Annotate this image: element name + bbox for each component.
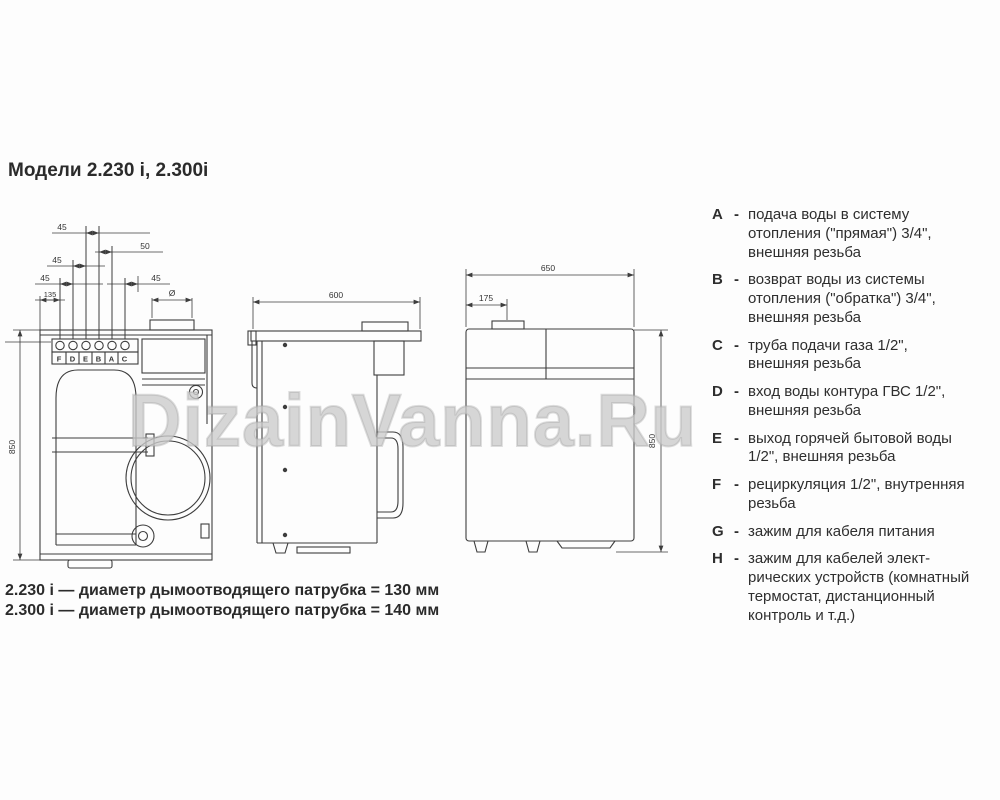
legend-key-h: H [712,550,734,567]
legend-key-f: F [712,476,734,493]
legend-text-g: зажим для кабеля питания [748,523,973,542]
legend-key-d: D [712,383,734,400]
side-dimension-lines [253,297,420,329]
side-screw-dots [283,343,287,537]
legend-dash: - [734,523,748,540]
legend-item-c: C - труба подачи газа 1/2", внешняя резь… [712,337,987,375]
note-model-2300-text: — диаметр дымоотводящего патрубка = 140 … [58,602,439,619]
legend-key-g: G [712,523,734,540]
connection-label-f: F [57,355,62,364]
connection-legend: A - подача воды в систему отопления ("пр… [712,206,987,625]
note-model-2300-name: 2.300 i [5,602,54,619]
legend-text-b: возврат воды из системы отопления ("обра… [748,271,973,327]
combustion-chamber-opening [126,436,210,520]
dim-flue-offset: 175 [479,293,493,303]
legend-dash: - [734,337,748,354]
connection-label-e: E [83,355,88,364]
legend-text-h: зажим для кабелей элект-рических устройс… [748,550,973,625]
page-title: Модели 2.230 i, 2.300i [8,160,208,182]
legend-dash: - [734,271,748,288]
dim-45-row4-right: 45 [151,273,161,283]
legend-text-a: подача воды в систему отопления ("прямая… [748,206,973,262]
side-door-bulge [377,432,403,518]
connection-pipes [60,226,125,339]
pump [132,525,154,547]
dim-height-back: 850 [647,434,657,448]
note-model-2230-text: — диаметр дымоотводящего патрубка = 130 … [58,582,439,599]
flue-collar [150,320,194,330]
note-model-2230-name: 2.230 i [5,582,54,599]
legend-item-e: E - выход горячей бытовой воды 1/2", вне… [712,430,987,468]
legend-key-b: B [712,271,734,288]
legend-item-g: G - зажим для кабеля питания [712,523,987,542]
legend-key-a: A [712,206,734,223]
dim-45-row4-left: 45 [40,273,50,283]
legend-item-a: A - подача воды в систему отопления ("пр… [712,206,987,262]
legend-dash: - [734,476,748,493]
legend-item-h: H - зажим для кабелей элект-рических уст… [712,550,987,625]
dim-depth: 600 [329,290,343,300]
legend-text-f: рециркуляция 1/2", внутренняя резьба [748,476,973,514]
connection-label-a: A [109,355,115,364]
dim-flue-diameter: Ø [169,288,176,298]
dim-50-row2: 50 [140,241,150,251]
note-model-2300: 2.300 i — диаметр дымоотводящего патрубк… [5,602,439,620]
legend-key-c: C [712,337,734,354]
expansion-tank [56,370,136,545]
boiler-dimension-diagram-page: Модели 2.230 i, 2.300i [0,0,1000,800]
legend-key-e: E [712,430,734,447]
legend-item-b: B - возврат воды из системы отопления ("… [712,271,987,327]
dim-width: 650 [541,263,555,273]
legend-text-c: труба подачи газа 1/2", внешняя резьба [748,337,973,375]
dim-45-row3: 45 [52,255,62,265]
side-body [248,322,421,553]
legend-dash: - [734,550,748,567]
legend-dash: - [734,430,748,447]
dim-135: 135 [44,290,57,299]
back-view-drawing: 650 175 850 [445,250,690,570]
legend-item-f: F - рециркуляция 1/2", внутренняя резьба [712,476,987,514]
note-model-2230: 2.230 i — диаметр дымоотводящего патрубк… [5,582,439,600]
legend-text-e: выход горячей бытовой воды 1/2", внешняя… [748,430,973,468]
side-view-drawing: 600 [240,285,445,575]
back-dimension-lines [466,269,668,552]
front-view-drawing: 45 50 45 45 45 135 Ø 850 F D E B A C [5,212,220,574]
legend-text-d: вход воды контура ГВС 1/2", внешняя резь… [748,383,973,421]
connection-label-d: D [70,355,76,364]
dim-height-front: 850 [7,440,17,454]
legend-item-d: D - вход воды контура ГВС 1/2", внешняя … [712,383,987,421]
flue-diameter-notes: 2.230 i — диаметр дымоотводящего патрубк… [5,582,439,620]
legend-dash: - [734,206,748,223]
dim-45-row1: 45 [57,222,67,232]
connection-label-c: C [122,355,128,364]
back-body [466,321,634,552]
connection-label-b: B [96,355,102,364]
legend-dash: - [734,383,748,400]
